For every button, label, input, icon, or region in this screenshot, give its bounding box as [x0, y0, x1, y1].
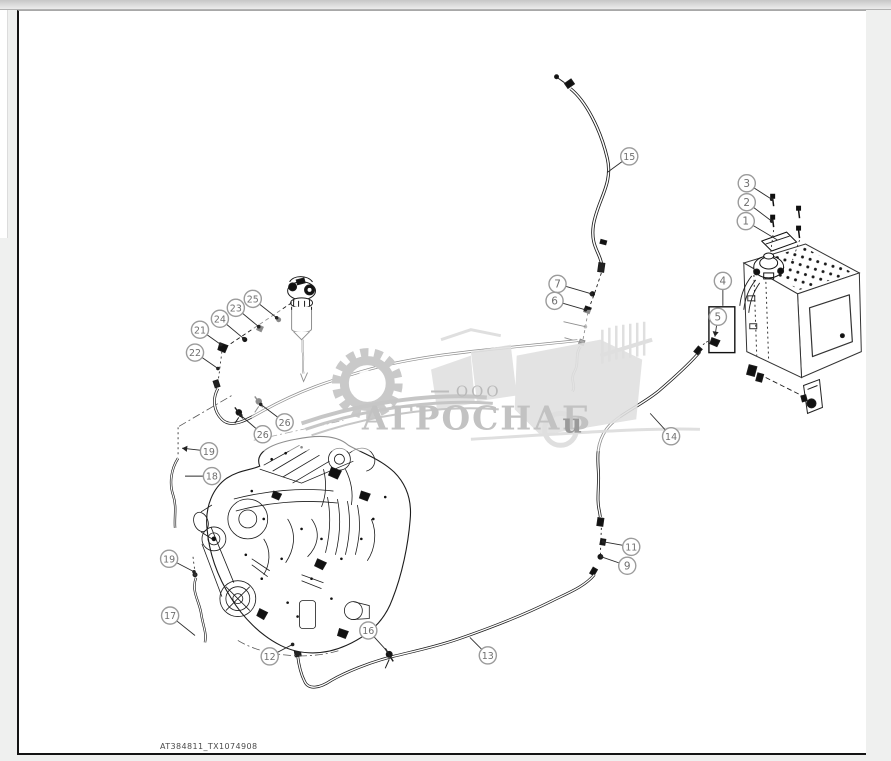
tank-assembly: [709, 194, 861, 413]
svg-text:19: 19: [203, 447, 215, 458]
svg-text:1: 1: [742, 216, 749, 228]
svg-text:19: 19: [163, 554, 175, 565]
svg-text:11: 11: [625, 542, 637, 553]
callout-12[interactable]: 12: [261, 643, 294, 665]
svg-text:15: 15: [623, 152, 635, 163]
svg-text:7: 7: [554, 278, 561, 290]
callout-6[interactable]: 6: [546, 292, 587, 311]
svg-text:25: 25: [247, 294, 259, 305]
svg-text:21: 21: [194, 325, 206, 336]
hose-15: [555, 75, 609, 273]
svg-text:3: 3: [743, 178, 750, 190]
svg-text:13: 13: [482, 651, 494, 662]
svg-text:2: 2: [743, 197, 750, 209]
callout-16[interactable]: 16: [360, 622, 388, 652]
svg-text:4: 4: [720, 275, 727, 287]
browser-top-strip: [0, 0, 891, 10]
svg-text:24: 24: [214, 314, 226, 325]
callout-4[interactable]: 4: [714, 272, 731, 305]
svg-text:14: 14: [665, 432, 677, 443]
svg-text:23: 23: [230, 303, 242, 314]
drawing-number: AT384811_TX1074908: [160, 742, 257, 751]
watermark: ООО АГРОСНАБ u: [252, 310, 700, 451]
callout-17[interactable]: 17: [162, 607, 195, 635]
watermark-suffix: u: [563, 408, 585, 439]
callout-15[interactable]: 15: [607, 148, 637, 173]
callout-13[interactable]: 13: [470, 637, 496, 663]
svg-text:17: 17: [164, 611, 176, 622]
callout-22[interactable]: 22: [186, 344, 219, 370]
svg-text:26: 26: [279, 418, 291, 429]
parts-diagram-canvas: ООО АГРОСНАБ u 1532145761411913161217191…: [19, 11, 866, 753]
callout-9[interactable]: 9: [600, 555, 636, 574]
svg-text:5: 5: [715, 311, 722, 323]
svg-text:16: 16: [362, 626, 374, 637]
engine-illustration: [191, 436, 410, 653]
svg-text:6: 6: [551, 295, 558, 307]
svg-text:22: 22: [189, 348, 201, 359]
left-panel-fragment: [0, 10, 8, 238]
svg-text:12: 12: [264, 652, 276, 663]
svg-text:26: 26: [257, 430, 269, 441]
watermark-company: АГРОСНАБ: [361, 398, 592, 437]
callout-19[interactable]: 19: [161, 550, 196, 573]
parts-diagram-sheet: ООО АГРОСНАБ u 1532145761411913161217191…: [17, 10, 866, 755]
callout-18[interactable]: 18: [185, 468, 220, 485]
svg-text:9: 9: [624, 560, 631, 572]
svg-text:18: 18: [206, 472, 218, 483]
callout-11[interactable]: 11: [602, 538, 640, 555]
callout-19[interactable]: 19: [182, 443, 217, 460]
